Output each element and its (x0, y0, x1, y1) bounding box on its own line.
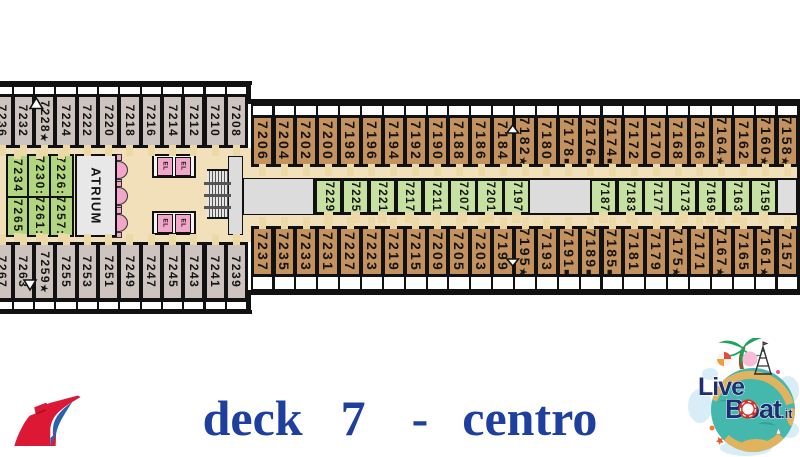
svg-text:.it: .it (781, 406, 793, 421)
